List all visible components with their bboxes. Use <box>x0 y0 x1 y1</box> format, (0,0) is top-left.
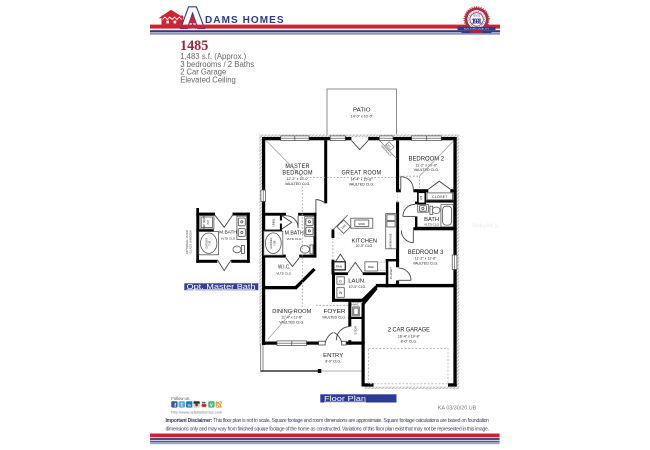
svg-text:dimensions only and may vary f: dimensions only and may vary from finish… <box>166 427 489 433</box>
svg-text:PATIO: PATIO <box>353 107 371 113</box>
svg-text:VLTD CLG: VLTD CLG <box>424 223 439 227</box>
svg-text:VAULTED CLG.: VAULTED CLG. <box>322 315 346 319</box>
svg-text:VLTD CLG.: VLTD CLG. <box>286 237 302 241</box>
svg-text:ENTRY: ENTRY <box>323 353 343 359</box>
svg-text:16'-4" x 19'-8": 16'-4" x 19'-8" <box>398 334 421 338</box>
svg-text:8'-0" CLG.: 8'-0" CLG. <box>401 339 418 343</box>
svg-text:BUILDING QUALITY: BUILDING QUALITY <box>464 28 489 31</box>
svg-text:KA 03/30/20 UB: KA 03/30/20 UB <box>438 406 477 412</box>
svg-text:LAUN.: LAUN. <box>348 279 366 285</box>
svg-text:GREAT ROOM: GREAT ROOM <box>342 169 382 176</box>
svg-text:FOYER: FOYER <box>324 309 346 315</box>
svg-text:M.BATH: M.BATH <box>219 230 237 236</box>
svg-text:RANGE: RANGE <box>388 233 392 242</box>
svg-text:SINCE: SINCE <box>473 15 481 18</box>
svg-text:STOR: STOR <box>354 325 358 334</box>
svg-text:11'-2" x 11'-6": 11'-2" x 11'-6" <box>415 257 437 261</box>
svg-text:SEP. SHWR: SEP. SHWR <box>204 216 206 229</box>
svg-text:f: f <box>174 403 176 409</box>
svg-text:TUB: TUB <box>273 240 277 245</box>
svg-text:TUB: TUB <box>209 240 212 245</box>
svg-text:LINEN: LINEN <box>271 219 275 227</box>
svg-text:VLTD CLG: VLTD CLG <box>221 236 236 240</box>
svg-text:Follow us:: Follow us: <box>171 396 190 401</box>
svg-text:Important Disclaimer: This flo: Important Disclaimer: This floor plan is… <box>166 418 490 424</box>
svg-text:SINK: SINK <box>358 222 365 226</box>
svg-text:http://www.adamshomes.com: http://www.adamshomes.com <box>171 409 222 414</box>
svg-text:StellarMLS: StellarMLS <box>472 224 499 230</box>
svg-text:BEDROOM 2: BEDROOM 2 <box>409 156 445 163</box>
svg-text:BEDROOM 3: BEDROOM 3 <box>408 249 444 256</box>
svg-text:14'-4" x 15'-8": 14'-4" x 15'-8" <box>350 177 373 181</box>
svg-text:M.BATH: M.BATH <box>285 231 304 237</box>
svg-text:14'-0" x 10'-0": 14'-0" x 10'-0" <box>351 114 374 118</box>
svg-text:CLOSET: CLOSET <box>432 195 448 199</box>
svg-text:VAULTED CLG.: VAULTED CLG. <box>349 183 374 187</box>
svg-text:VLTD CLG.: VLTD CLG. <box>276 272 292 276</box>
svg-text:VAULTED CLG.: VAULTED CLG. <box>413 262 438 266</box>
svg-text:8'-0" CLG.: 8'-0" CLG. <box>325 359 341 363</box>
svg-text:v: v <box>210 403 213 409</box>
svg-text:PAN.: PAN. <box>336 264 343 268</box>
svg-text:LIN: LIN <box>419 196 423 200</box>
svg-text:3'x3': 3'x3' <box>208 219 210 224</box>
svg-text:GLASS WINDOW: GLASS WINDOW <box>189 230 193 253</box>
svg-text:HVAC: HVAC <box>352 303 359 307</box>
svg-text:Elevated Ceiling: Elevated Ceiling <box>180 75 236 84</box>
svg-text:10'-0" CLG.: 10'-0" CLG. <box>349 285 367 289</box>
svg-text:REF: REF <box>368 265 374 269</box>
svg-text:12'-2" x 15'-0": 12'-2" x 15'-0" <box>287 177 310 181</box>
svg-text:in: in <box>188 403 191 407</box>
svg-text:2 CAR GARAGE: 2 CAR GARAGE <box>388 326 430 333</box>
svg-text:OVEN: OVEN <box>388 242 392 249</box>
svg-text:GARDEN: GARDEN <box>269 238 273 249</box>
svg-text:1991: 1991 <box>471 19 482 26</box>
svg-text:CLOSET: CLOSET <box>389 267 393 279</box>
svg-text:W.I.C.: W.I.C. <box>278 265 291 271</box>
svg-text:VAULTED CLG.: VAULTED CLG. <box>285 182 310 186</box>
svg-text:10'-0" CLG.: 10'-0" CLG. <box>356 244 374 248</box>
svg-text:DAMS HOMES: DAMS HOMES <box>205 15 285 26</box>
svg-text:BEDROOM: BEDROOM <box>282 170 313 177</box>
svg-text:11'-4" x 11'-6": 11'-4" x 11'-6" <box>281 315 303 319</box>
svg-text:11'-2" x 10'-0": 11'-2" x 10'-0" <box>415 163 438 167</box>
